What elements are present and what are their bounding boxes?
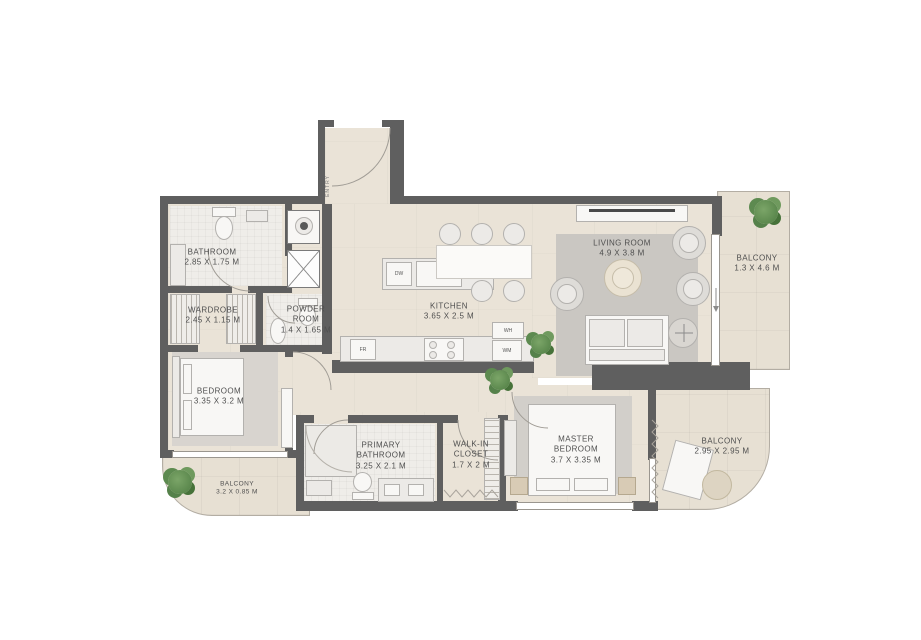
room-dims: 3.35 X 3.2 M <box>173 397 265 407</box>
room-dims: 3.2 X 0.85 M <box>182 489 292 497</box>
dining-table <box>436 245 532 279</box>
wall-bathroom-bottom-b <box>248 286 292 293</box>
room-dims: 2.95 X 2.95 M <box>667 447 777 457</box>
plant <box>168 470 192 494</box>
room-name: LIVING ROOM <box>562 239 682 249</box>
tv-icon <box>589 209 675 212</box>
room-dims: 2.85 X 1.75 M <box>166 258 258 268</box>
wall-top-left <box>160 196 325 204</box>
wall-master-right <box>648 388 656 460</box>
hob-burner <box>429 341 437 349</box>
wall-bottom-main <box>296 501 518 511</box>
wall-living-master <box>592 362 750 390</box>
bedroom-window <box>172 451 288 458</box>
room-label-bathroom: BATHROOM 2.85 X 1.75 M <box>166 248 258 269</box>
armchair-seat <box>683 279 703 299</box>
master-balcony-window <box>649 458 656 503</box>
wall-living-window-stub <box>712 196 722 236</box>
room-dims: 2.45 X 1.15 M <box>167 316 259 326</box>
fridge-label: FR <box>360 347 367 353</box>
service-shaft <box>287 250 320 288</box>
hob-burner <box>447 341 455 349</box>
master-pillow <box>536 478 570 491</box>
water-heater: WH <box>492 322 524 339</box>
wall-bedroom-right-stub <box>285 345 293 357</box>
tv-console <box>576 205 688 222</box>
room-label-balcony-right: BALCONY 1.3 X 4.6 M <box>731 254 783 275</box>
sofa-back <box>589 349 665 361</box>
floor-entry <box>325 128 392 204</box>
dining-chair <box>471 223 493 245</box>
wall-pbath-left <box>296 415 304 511</box>
pbath-toilet-tank <box>352 492 374 500</box>
room-label-kitchen: KITCHEN 3.65 X 2.5 M <box>399 302 499 323</box>
bathroom-shelf <box>246 210 268 222</box>
dining-chair <box>503 223 525 245</box>
plant <box>754 200 778 224</box>
wall-pbath-closet <box>437 423 443 503</box>
dining-chair <box>471 280 493 302</box>
room-name: WALK-IN CLOSET <box>445 439 497 460</box>
room-label-living-room: LIVING ROOM 4.9 X 3.8 M <box>562 239 682 260</box>
bedroom-dresser <box>281 388 293 448</box>
wall-left-outer <box>160 196 168 458</box>
washing-machine: WM <box>492 340 522 361</box>
armchair-seat <box>557 284 577 304</box>
wall-entry-stub-right <box>382 120 404 127</box>
room-name: BALCONY <box>182 481 292 489</box>
room-name: BATHROOM <box>166 248 258 258</box>
room-name: WARDROBE <box>167 306 259 316</box>
room-dims: 1.4 X 1.65 M <box>280 325 332 335</box>
wall-entry-left <box>318 120 325 204</box>
dishwasher-label: DW <box>395 271 403 277</box>
nightstand <box>618 477 636 495</box>
pbath-cabinet <box>306 480 332 496</box>
hob-burner <box>429 351 437 359</box>
nightstand <box>510 477 528 495</box>
toilet-bowl <box>215 216 233 240</box>
plant <box>531 334 551 354</box>
sofa-cushion <box>627 319 663 347</box>
wall-closet-top-a <box>440 415 458 423</box>
room-name: POWDER ROOM <box>280 304 332 325</box>
room-name: BALCONY <box>667 437 777 447</box>
room-label-wardrobe: WARDROBE 2.45 X 1.15 M <box>167 306 259 327</box>
wall-bathroom-bottom-a <box>168 286 232 293</box>
room-name: PRIMARY BATHROOM <box>351 440 411 461</box>
room-name: BEDROOM <box>173 387 265 397</box>
room-dims: 3.65 X 2.5 M <box>399 312 499 322</box>
floor-plan: DW FR WM WH <box>0 0 921 640</box>
dining-chair <box>503 280 525 302</box>
room-dims: 1.7 X 2 M <box>445 460 497 470</box>
coffee-table-inner <box>612 267 634 289</box>
room-dims: 4.9 X 3.8 M <box>562 249 682 259</box>
living-balcony-window <box>711 234 720 366</box>
room-name: KITCHEN <box>399 302 499 312</box>
armchair-seat <box>679 233 699 253</box>
room-label-master-bedroom: MASTER BEDROOM 3.7 X 3.35 M <box>544 434 608 465</box>
dining-chair <box>439 223 461 245</box>
washing-machine-label: WM <box>503 348 512 354</box>
washer-drum-icon <box>295 217 313 235</box>
room-label-balcony-bottom-left: BALCONY 3.2 X 0.85 M <box>182 481 292 498</box>
room-name: BALCONY <box>731 254 783 264</box>
room-dims: 1.3 X 4.6 M <box>731 264 783 274</box>
master-dresser <box>504 420 517 476</box>
room-label-powder-room: POWDER ROOM 1.4 X 1.65 M <box>280 304 332 335</box>
room-label-primary-bathroom: PRIMARY BATHROOM 3.25 X 2.1 M <box>351 440 411 471</box>
shower <box>305 425 357 477</box>
vanity-sink <box>384 484 400 496</box>
room-dims: 3.7 X 3.35 M <box>544 455 608 465</box>
wall-entry-right <box>390 120 404 204</box>
hob-burner <box>447 351 455 359</box>
room-dims: 3.25 X 2.1 M <box>351 461 411 471</box>
plant <box>490 370 510 390</box>
wall-bedroom-top-a <box>168 345 198 352</box>
entry-label: ENTRY <box>325 175 331 197</box>
room-name: MASTER BEDROOM <box>544 434 608 455</box>
balcony-right <box>717 191 790 370</box>
dishwasher: DW <box>386 262 412 286</box>
balcony-table <box>702 470 732 500</box>
room-label-balcony-bottom-right: BALCONY 2.95 X 2.95 M <box>667 437 777 458</box>
wall-pbath-top-b <box>348 415 440 423</box>
water-heater-label: WH <box>504 328 512 334</box>
side-table <box>668 318 698 348</box>
master-window <box>516 502 634 510</box>
room-label-walk-in-closet: WALK-IN CLOSET 1.7 X 2 M <box>445 439 497 470</box>
master-pillow <box>574 478 608 491</box>
room-label-bedroom: BEDROOM 3.35 X 3.2 M <box>173 387 265 408</box>
pbath-toilet-bowl <box>353 472 372 492</box>
vanity-sink <box>408 484 424 496</box>
wall-entry-stub-left <box>318 120 334 127</box>
sofa-cushion <box>589 319 625 347</box>
wall-top-right <box>400 196 722 204</box>
fridge: FR <box>350 339 376 360</box>
